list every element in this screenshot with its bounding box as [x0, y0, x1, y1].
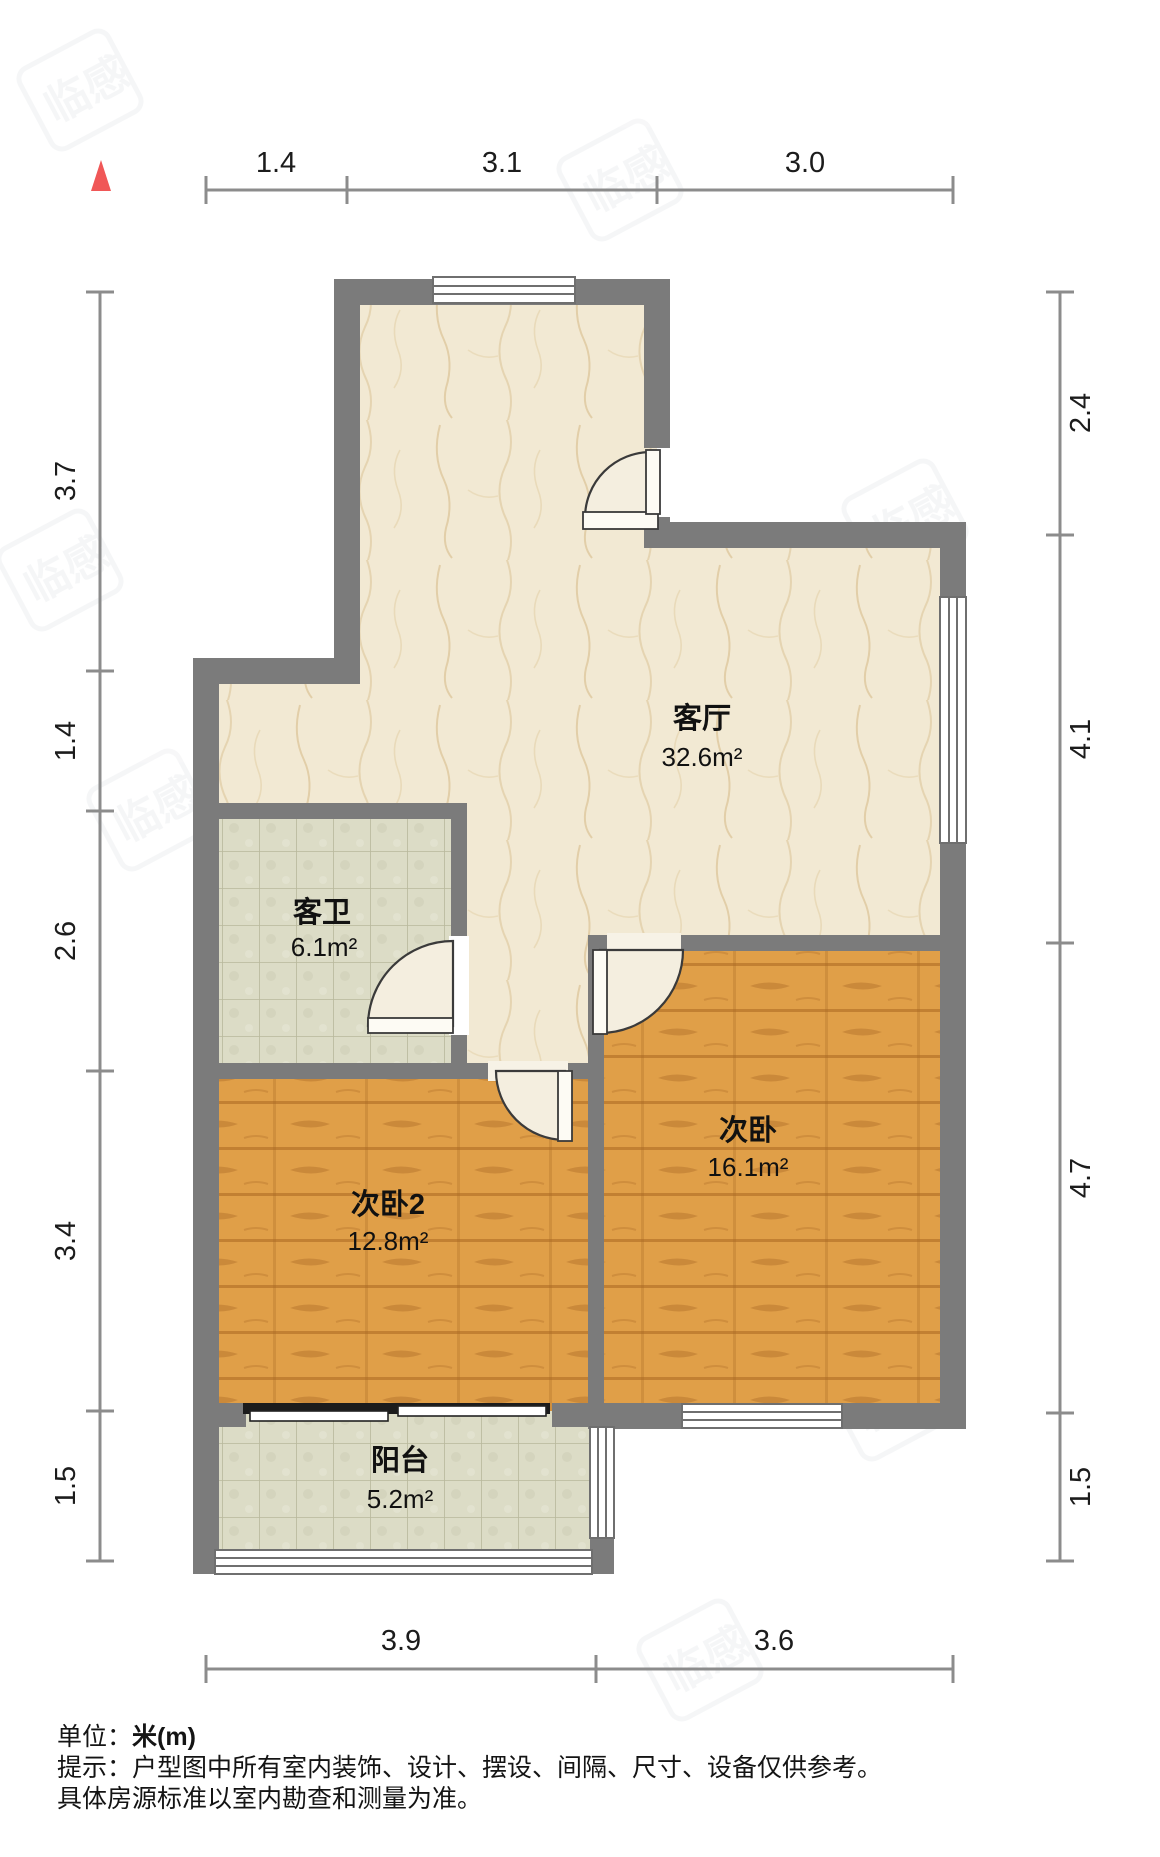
unit-label: 单位：: [57, 1723, 132, 1751]
dim-right-3: 4.7: [1065, 1158, 1097, 1198]
wall-bedroom2-top-left: [193, 1063, 488, 1079]
bedroom-label: 次卧: [719, 1114, 777, 1147]
wall-topsection-right-upper: [644, 279, 670, 448]
dim-right-1: 2.4: [1065, 393, 1097, 433]
window-right: [940, 597, 966, 843]
dim-left-1: 3.7: [50, 461, 82, 501]
dim-top-3: 3.0: [785, 147, 825, 179]
dim-bottom: [206, 1655, 953, 1683]
dim-right: [1046, 292, 1074, 1561]
wall-rightsection-top: [644, 522, 966, 548]
unit-note: 单位：米(m): [57, 1722, 1117, 1753]
living-room-label: 客厅: [673, 701, 731, 735]
wall-bedroom-bottom-right: [842, 1403, 966, 1429]
dim-bottom-2: 3.6: [754, 1625, 794, 1657]
wall-balcony-bottom-left: [193, 1548, 215, 1574]
window-top: [433, 277, 575, 303]
bathroom-area: 6.1m²: [291, 932, 358, 962]
window-balcony-bottom: [215, 1550, 592, 1574]
unit-value: 米(m): [132, 1723, 196, 1751]
window-bedroom-bottom: [682, 1404, 842, 1428]
floorplan-page: 临感 临感 临感 临感 临感 临感 临感 临感: [0, 0, 1160, 1857]
bedroom2-label: 次卧2: [351, 1188, 425, 1221]
wall-right-lower: [940, 843, 966, 1429]
wall-right-upper: [940, 522, 966, 597]
balcony-label: 阳台: [371, 1443, 429, 1477]
window-balcony-right: [590, 1427, 614, 1538]
tip-note-line1: 提示：户型图中所有室内装饰、设计、摆设、间隔、尺寸、设备仅供参考。: [57, 1753, 1117, 1784]
wall-left: [193, 658, 219, 1574]
dim-right-2: 4.1: [1065, 719, 1097, 759]
bathroom-label: 客卫: [293, 895, 351, 929]
floorplan-canvas: 临感 临感 临感 临感 临感 临感 临感 临感: [0, 0, 1160, 1857]
bedroom2-area: 12.8m²: [348, 1226, 429, 1256]
dim-left-2: 1.4: [50, 721, 82, 761]
wall-balcony-right-stub: [590, 1538, 614, 1574]
dim-left-4: 3.4: [50, 1221, 82, 1261]
wall-bedroom-top-right: [681, 935, 948, 951]
footer-notes: 单位：米(m) 提示：户型图中所有室内装饰、设计、摆设、间隔、尺寸、设备仅供参考…: [57, 1722, 1117, 1815]
balcony-area: 5.2m²: [367, 1484, 434, 1514]
dim-left-3: 2.6: [50, 921, 82, 961]
tip-note-line2: 具体房源标准以室内勘查和测量为准。: [57, 1784, 1117, 1815]
wall-topsection-left: [334, 279, 360, 684]
wall-bathroom-top: [193, 803, 467, 819]
dim-top-1: 1.4: [256, 147, 296, 179]
north-compass-icon: [91, 160, 111, 191]
dim-left: [86, 292, 114, 1561]
dim-right-4: 1.5: [1065, 1467, 1097, 1507]
dim-bottom-1: 3.9: [381, 1625, 421, 1657]
wall-bathroom-right-upper: [451, 803, 467, 938]
dim-top-2: 3.1: [482, 147, 522, 179]
dim-left-5: 1.5: [50, 1466, 82, 1506]
bedroom-area: 16.1m²: [708, 1152, 789, 1182]
living-room-area: 32.6m²: [662, 742, 743, 772]
wall-balcony-top-left: [193, 1403, 246, 1427]
wall-bedroom-bottom-left: [588, 1403, 682, 1429]
